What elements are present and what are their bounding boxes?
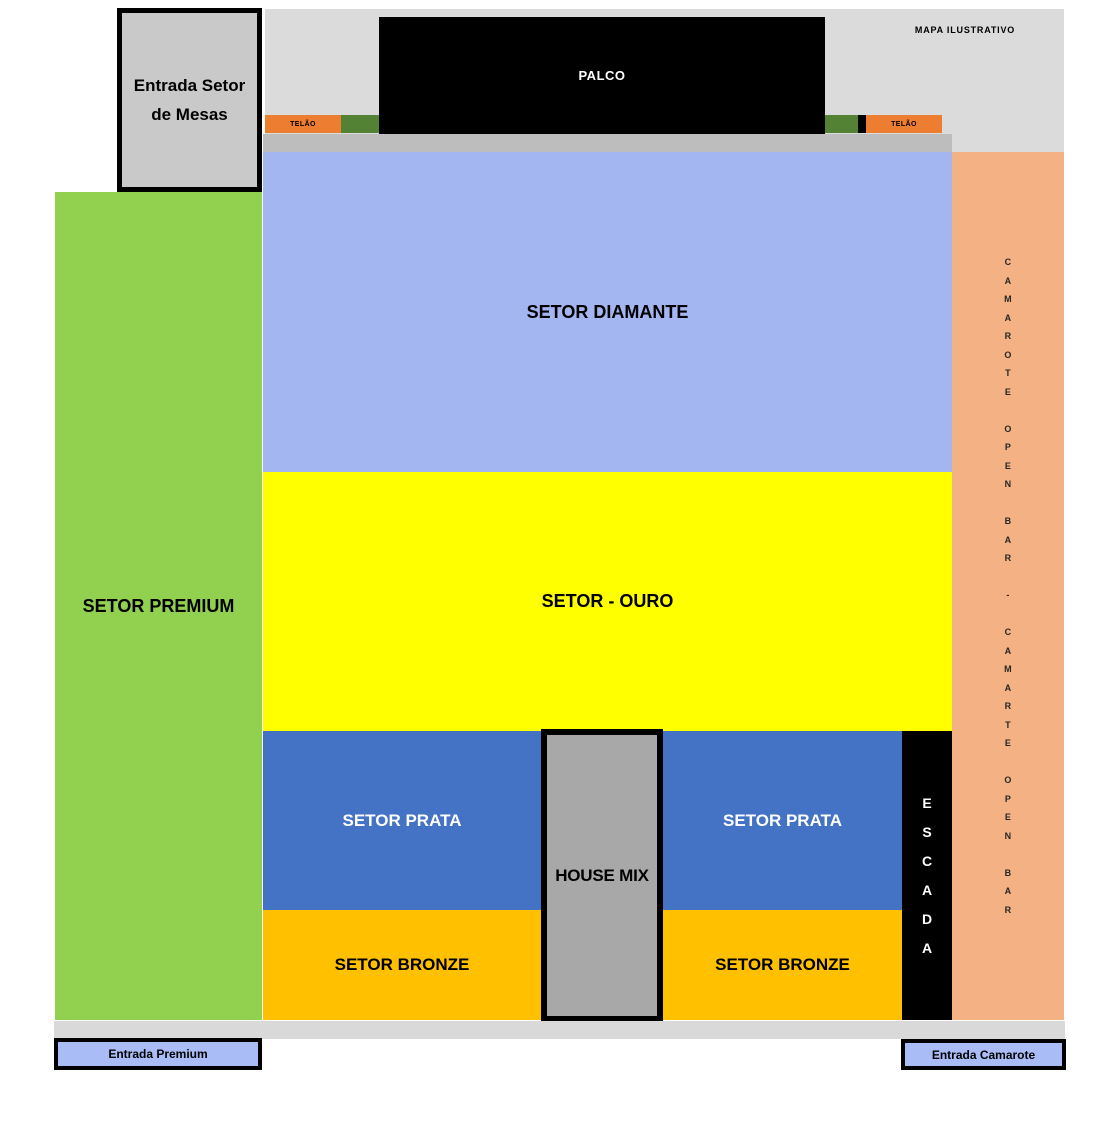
sector-premium-label: SETOR PREMIUM: [83, 596, 235, 617]
stairs-column: E S C A D A: [902, 731, 952, 1020]
stage-label: PALCO: [578, 68, 625, 83]
sector-bronze-left-label: SETOR BRONZE: [335, 955, 470, 975]
venue-map: MAPA ILUSTRATIVO TELÃO TELÃO PALCO SETOR…: [0, 0, 1116, 1146]
screen-right-label: TELÃO: [891, 121, 917, 128]
sector-bronze-right: SETOR BRONZE: [663, 910, 902, 1020]
entrance-camarote-box: Entrada Camarote: [901, 1039, 1066, 1070]
entrance-mesas-box: Entrada Setor de Mesas: [117, 8, 262, 192]
stage-side-panel-left: [341, 115, 379, 133]
stage-side-panel-right: [825, 115, 858, 133]
entrance-camarote-label: Entrada Camarote: [932, 1048, 1035, 1062]
stage: PALCO: [379, 17, 825, 134]
sector-ouro: SETOR - OURO: [263, 472, 952, 731]
entrance-premium-box: Entrada Premium: [54, 1038, 262, 1070]
sector-bronze-right-label: SETOR BRONZE: [715, 955, 850, 975]
sector-prata-left-label: SETOR PRATA: [342, 811, 461, 831]
entrance-mesas-label: Entrada Setor de Mesas: [134, 71, 245, 129]
house-mix-label: HOUSE MIX: [555, 866, 649, 886]
screen-left: TELÃO: [265, 115, 341, 133]
stage-divider-bar: [858, 115, 866, 133]
sector-prata-right-label: SETOR PRATA: [723, 811, 842, 831]
sector-bronze-left: SETOR BRONZE: [263, 910, 541, 1020]
map-disclaimer-title: MAPA ILUSTRATIVO: [890, 22, 1040, 38]
sector-camarote-open-bar: C A M A R O T E O P E N B A R - C A M A …: [952, 152, 1064, 1020]
sector-diamante: SETOR DIAMANTE: [263, 152, 952, 472]
entrance-premium-label: Entrada Premium: [108, 1047, 207, 1061]
stairs-label: E S C A D A: [922, 789, 932, 963]
bottom-walkway: [54, 1021, 1065, 1039]
front-walkway: [263, 134, 952, 152]
sector-premium: SETOR PREMIUM: [55, 192, 262, 1020]
screen-left-label: TELÃO: [290, 121, 316, 128]
screen-right: TELÃO: [866, 115, 942, 133]
sector-ouro-label: SETOR - OURO: [542, 591, 674, 612]
sector-prata-right: SETOR PRATA: [663, 731, 902, 910]
sector-prata-left: SETOR PRATA: [263, 731, 541, 910]
house-mix-booth: HOUSE MIX: [541, 729, 663, 1022]
sector-diamante-label: SETOR DIAMANTE: [527, 302, 689, 323]
sector-camarote-label: C A M A R O T E O P E N B A R - C A M A …: [1004, 253, 1012, 919]
